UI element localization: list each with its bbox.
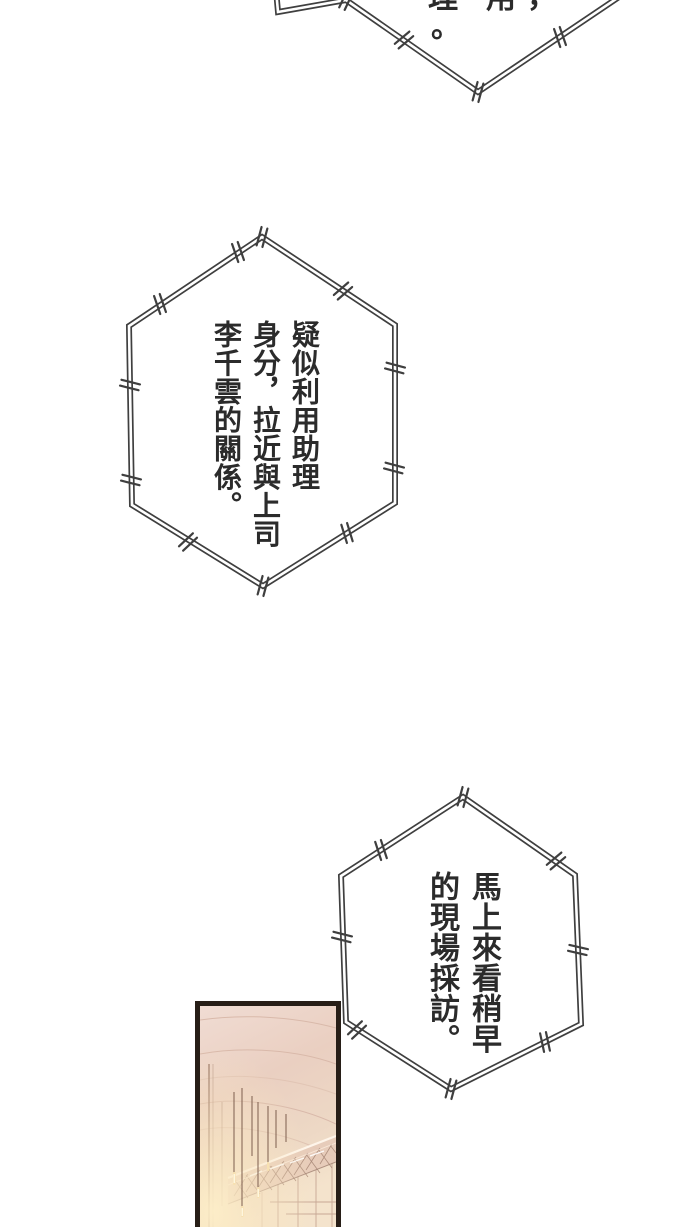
top-bubble-outline [250,0,690,102]
middle-bubble-text: 疑似利用助理 身分，拉近與上司 李千雲的關係。 [212,320,318,548]
cjk-glyph: 用 [486,0,516,14]
comic-page: 理 用 ， 。 疑似利用助理 身分，拉近與上司 李千雲的關係。 馬上來看稍早 的… [0,0,690,1227]
cjk-glyph: 。 [431,13,461,43]
speech-bubbles-layer [0,0,690,1227]
vertical-text-column: 馬上來看稍早 [468,871,498,1054]
vertical-text-column: 的現場採訪。 [426,871,456,1054]
vertical-text-column: 身分，拉近與上司 [251,320,279,548]
vertical-text-column: 李千雲的關係。 [212,320,240,520]
cjk-glyph: ， [527,0,557,13]
bottom-bubble-text: 馬上來看稍早 的現場採訪。 [426,871,498,1054]
vertical-text-column: 疑似利用助理 [290,320,318,491]
